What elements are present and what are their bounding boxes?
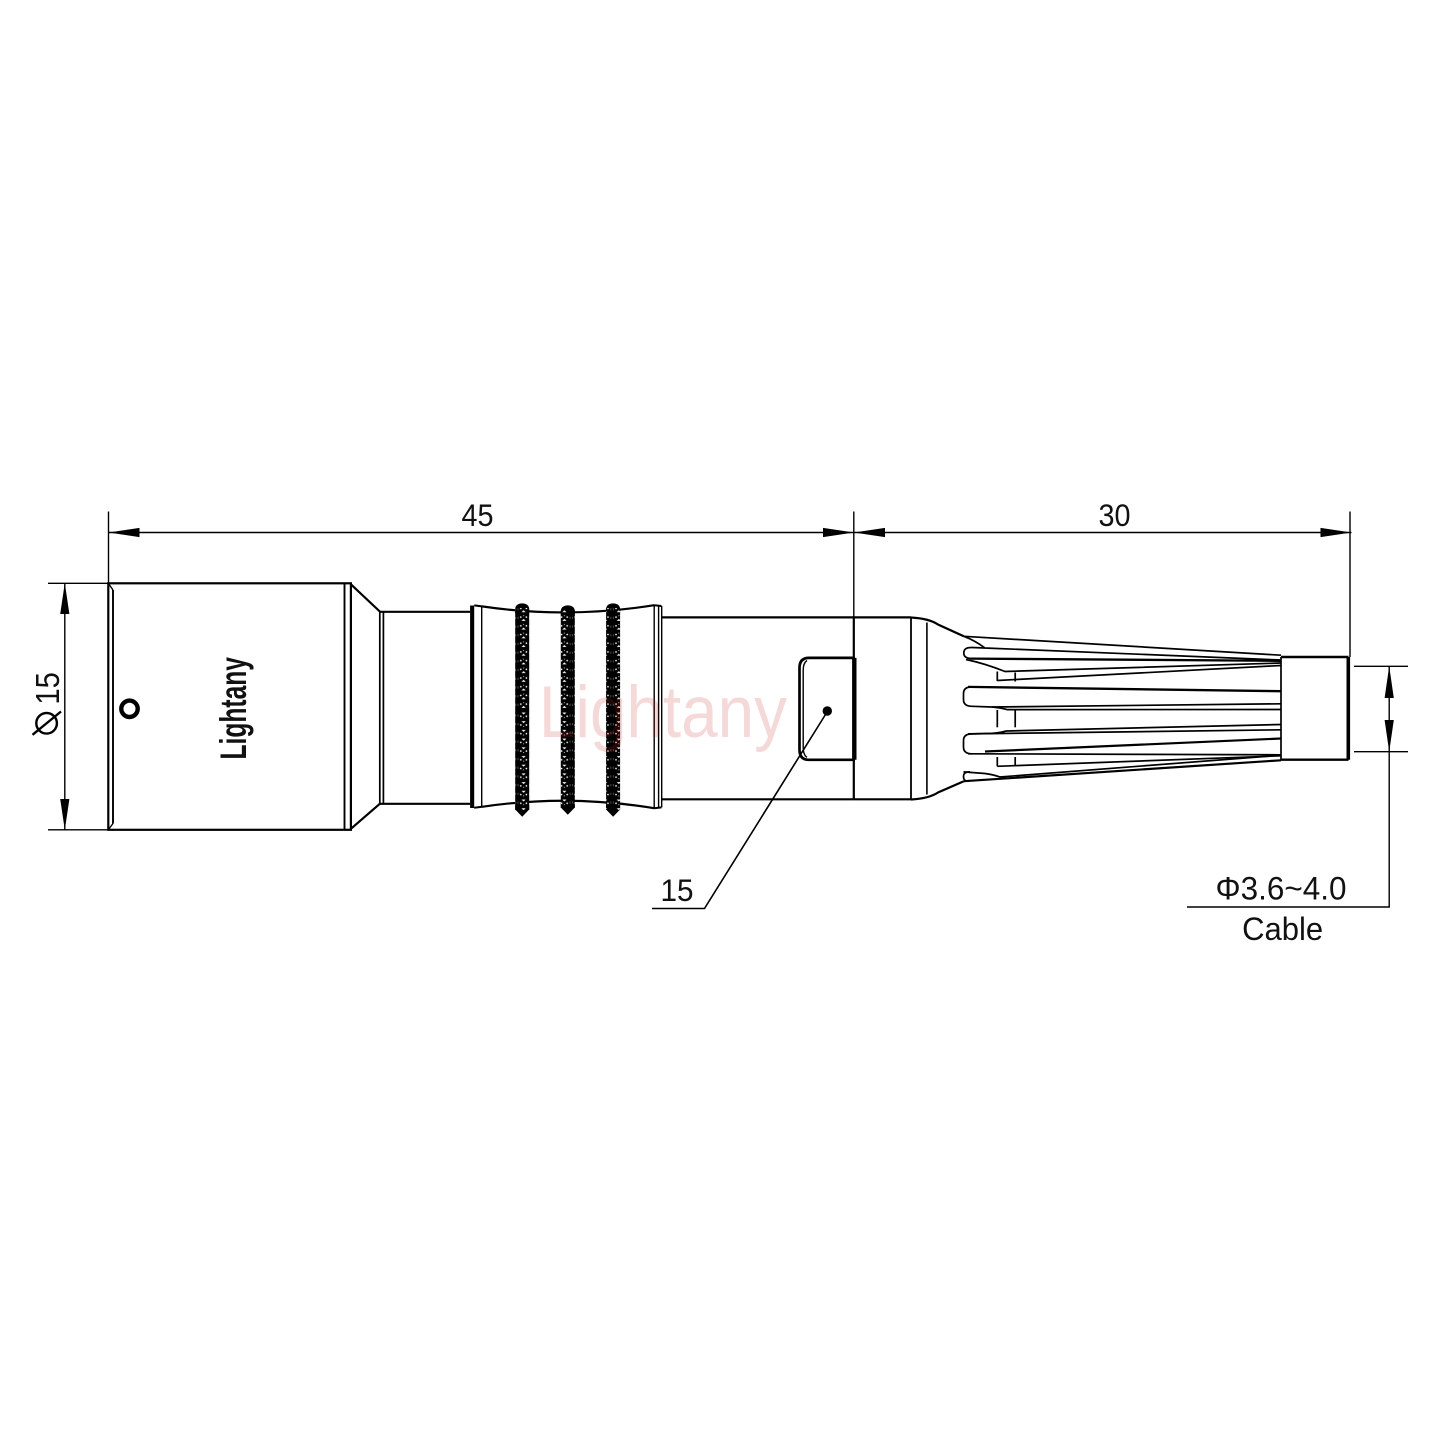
svg-text:45: 45 xyxy=(462,497,494,533)
svg-text:15: 15 xyxy=(29,672,66,705)
svg-text:Lightany: Lightany xyxy=(213,657,254,760)
svg-text:15: 15 xyxy=(661,872,694,908)
svg-text:Φ3.6~4.0: Φ3.6~4.0 xyxy=(1216,871,1347,907)
svg-text:Cable: Cable xyxy=(1242,911,1323,947)
svg-text:30: 30 xyxy=(1099,497,1131,533)
svg-text:Lightany: Lightany xyxy=(539,672,787,753)
